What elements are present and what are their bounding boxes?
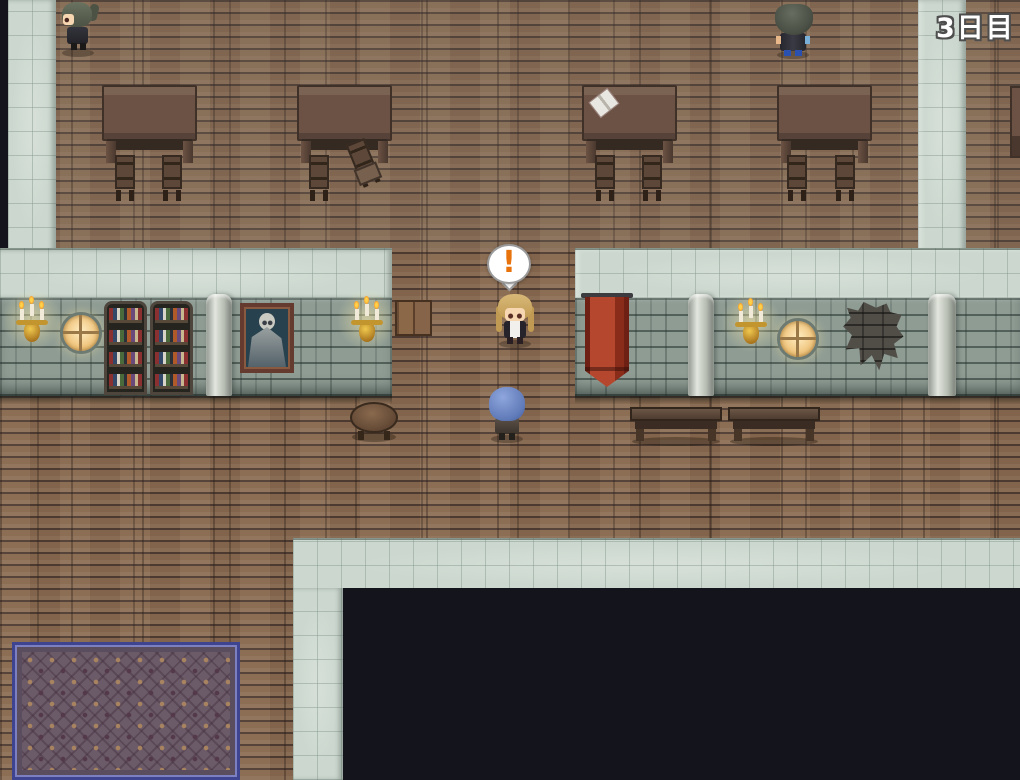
wall-pillar bbox=[688, 294, 714, 396]
chair bbox=[113, 155, 137, 203]
chair bbox=[833, 155, 857, 203]
candelabra-icon bbox=[734, 301, 768, 349]
wall-pillar bbox=[928, 294, 956, 396]
candelabra-icon bbox=[15, 299, 49, 347]
bookshelf[interactable] bbox=[104, 301, 147, 395]
player-blonde-girl[interactable] bbox=[493, 292, 537, 348]
candelabra-icon bbox=[350, 299, 384, 347]
flame-icon bbox=[19, 301, 24, 309]
round-window bbox=[777, 318, 819, 360]
flame-icon bbox=[29, 296, 34, 304]
chair bbox=[640, 155, 664, 203]
exclamation-mark: ! bbox=[502, 248, 516, 278]
wooden-table-edge bbox=[1010, 86, 1020, 158]
wall-shadow-left bbox=[0, 396, 392, 404]
day-counter: 3日目 bbox=[936, 6, 1015, 45]
ghost-portrait-painting[interactable] bbox=[240, 303, 294, 373]
bookshelf[interactable] bbox=[150, 301, 193, 395]
wall-top-band-bottom-vertical bbox=[293, 588, 343, 780]
ornate-carpet bbox=[12, 642, 240, 780]
chair bbox=[160, 155, 184, 203]
game-viewport[interactable]: ! 3日目 bbox=[0, 0, 1020, 780]
wall-top-strip-left bbox=[8, 0, 56, 252]
dark-void-top-left bbox=[0, 0, 8, 250]
round-window bbox=[60, 312, 102, 354]
wooden-wall-sign[interactable] bbox=[395, 300, 432, 336]
chair bbox=[307, 155, 331, 203]
chair bbox=[785, 155, 809, 203]
wooden-table bbox=[777, 85, 872, 165]
wooden-table bbox=[297, 85, 392, 165]
npc-ponytail-girl[interactable] bbox=[56, 1, 100, 57]
wall-top-band-right bbox=[575, 248, 1020, 298]
exclamation-balloon-icon: ! bbox=[487, 244, 531, 284]
red-banner bbox=[583, 293, 631, 389]
wooden-bench bbox=[630, 405, 722, 449]
wall-top-band-bottom bbox=[293, 538, 1020, 590]
wall-pillar bbox=[206, 294, 232, 396]
flame-icon bbox=[39, 301, 44, 309]
round-stool bbox=[348, 402, 400, 446]
wall-top-band-left bbox=[0, 248, 392, 298]
wooden-table bbox=[102, 85, 197, 165]
dark-room-void-bottom bbox=[343, 588, 1020, 780]
npc-dark-suit-back[interactable] bbox=[771, 3, 815, 59]
chair bbox=[593, 155, 617, 203]
npc-blue-hair-back[interactable] bbox=[485, 387, 529, 443]
wooden-bench bbox=[728, 405, 820, 449]
wall-shadow-right bbox=[575, 396, 1020, 404]
